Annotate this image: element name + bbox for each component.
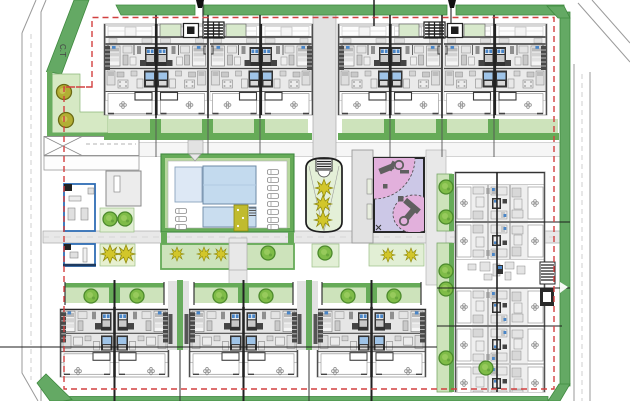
- svg-text:C.T: C.T: [58, 44, 67, 57]
